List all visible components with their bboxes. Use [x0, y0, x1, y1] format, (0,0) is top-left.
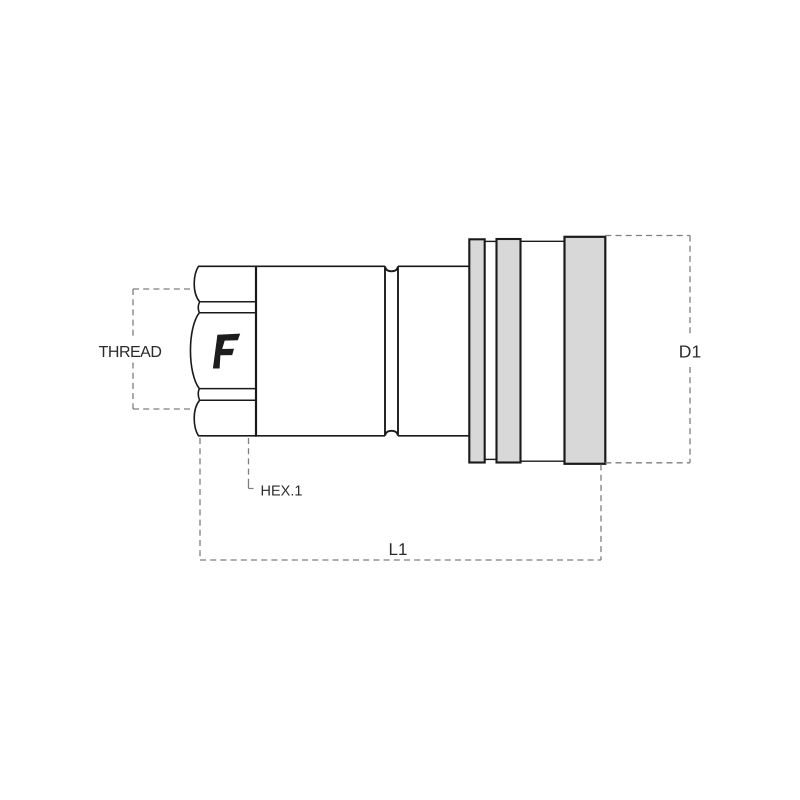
svg-text:L1: L1 [389, 540, 408, 559]
svg-text:THREAD: THREAD [99, 344, 162, 361]
svg-text:HEX.1: HEX.1 [260, 484, 302, 500]
svg-text:D1: D1 [679, 341, 701, 361]
